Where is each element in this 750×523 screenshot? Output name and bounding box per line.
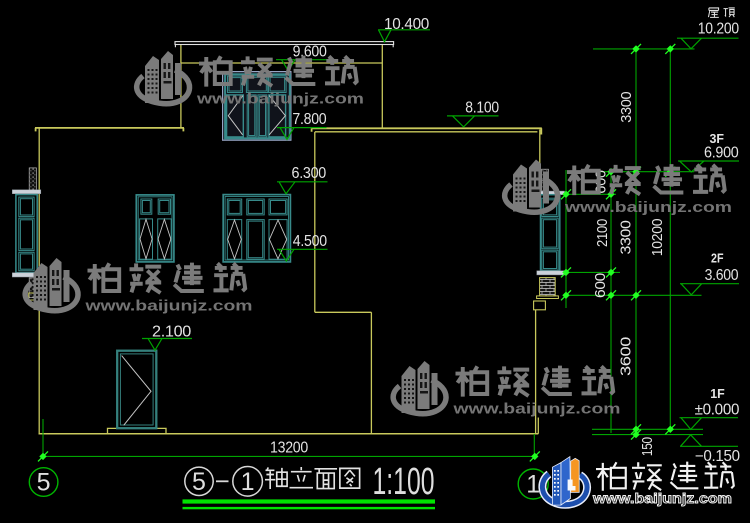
svg-text:3600: 3600 xyxy=(619,337,635,376)
svg-text:6.300: 6.300 xyxy=(292,165,327,182)
svg-text:5: 5 xyxy=(37,469,51,497)
svg-text:1:100: 1:100 xyxy=(373,461,435,503)
svg-text:www.baijunjz.com: www.baijunjz.com xyxy=(592,490,732,506)
svg-text:−0.150: −0.150 xyxy=(695,448,741,465)
svg-text:10200: 10200 xyxy=(650,219,666,257)
svg-text:600: 600 xyxy=(593,273,609,298)
svg-text:150: 150 xyxy=(640,437,656,456)
svg-text:9.600: 9.600 xyxy=(293,44,328,61)
svg-text:3300: 3300 xyxy=(619,220,635,254)
svg-text:3300: 3300 xyxy=(619,92,635,123)
svg-text:2F: 2F xyxy=(711,251,724,266)
svg-text:±0.000: ±0.000 xyxy=(695,401,740,418)
svg-text:2.100: 2.100 xyxy=(152,324,192,341)
svg-text:6.900: 6.900 xyxy=(704,144,739,161)
svg-text:4.500: 4.500 xyxy=(293,233,328,250)
svg-text:10.400: 10.400 xyxy=(384,16,430,33)
svg-text:1: 1 xyxy=(241,468,255,496)
svg-text:1F: 1F xyxy=(710,386,725,401)
svg-text:5: 5 xyxy=(192,468,206,496)
svg-text:2100: 2100 xyxy=(595,219,611,247)
svg-text:3F: 3F xyxy=(710,131,725,146)
svg-text:7.800: 7.800 xyxy=(292,111,327,128)
svg-text:3.600: 3.600 xyxy=(705,267,739,284)
svg-text:10.200: 10.200 xyxy=(698,21,740,38)
svg-text:8.100: 8.100 xyxy=(465,99,499,116)
svg-text:13200: 13200 xyxy=(270,439,309,456)
svg-text:1: 1 xyxy=(526,471,540,499)
